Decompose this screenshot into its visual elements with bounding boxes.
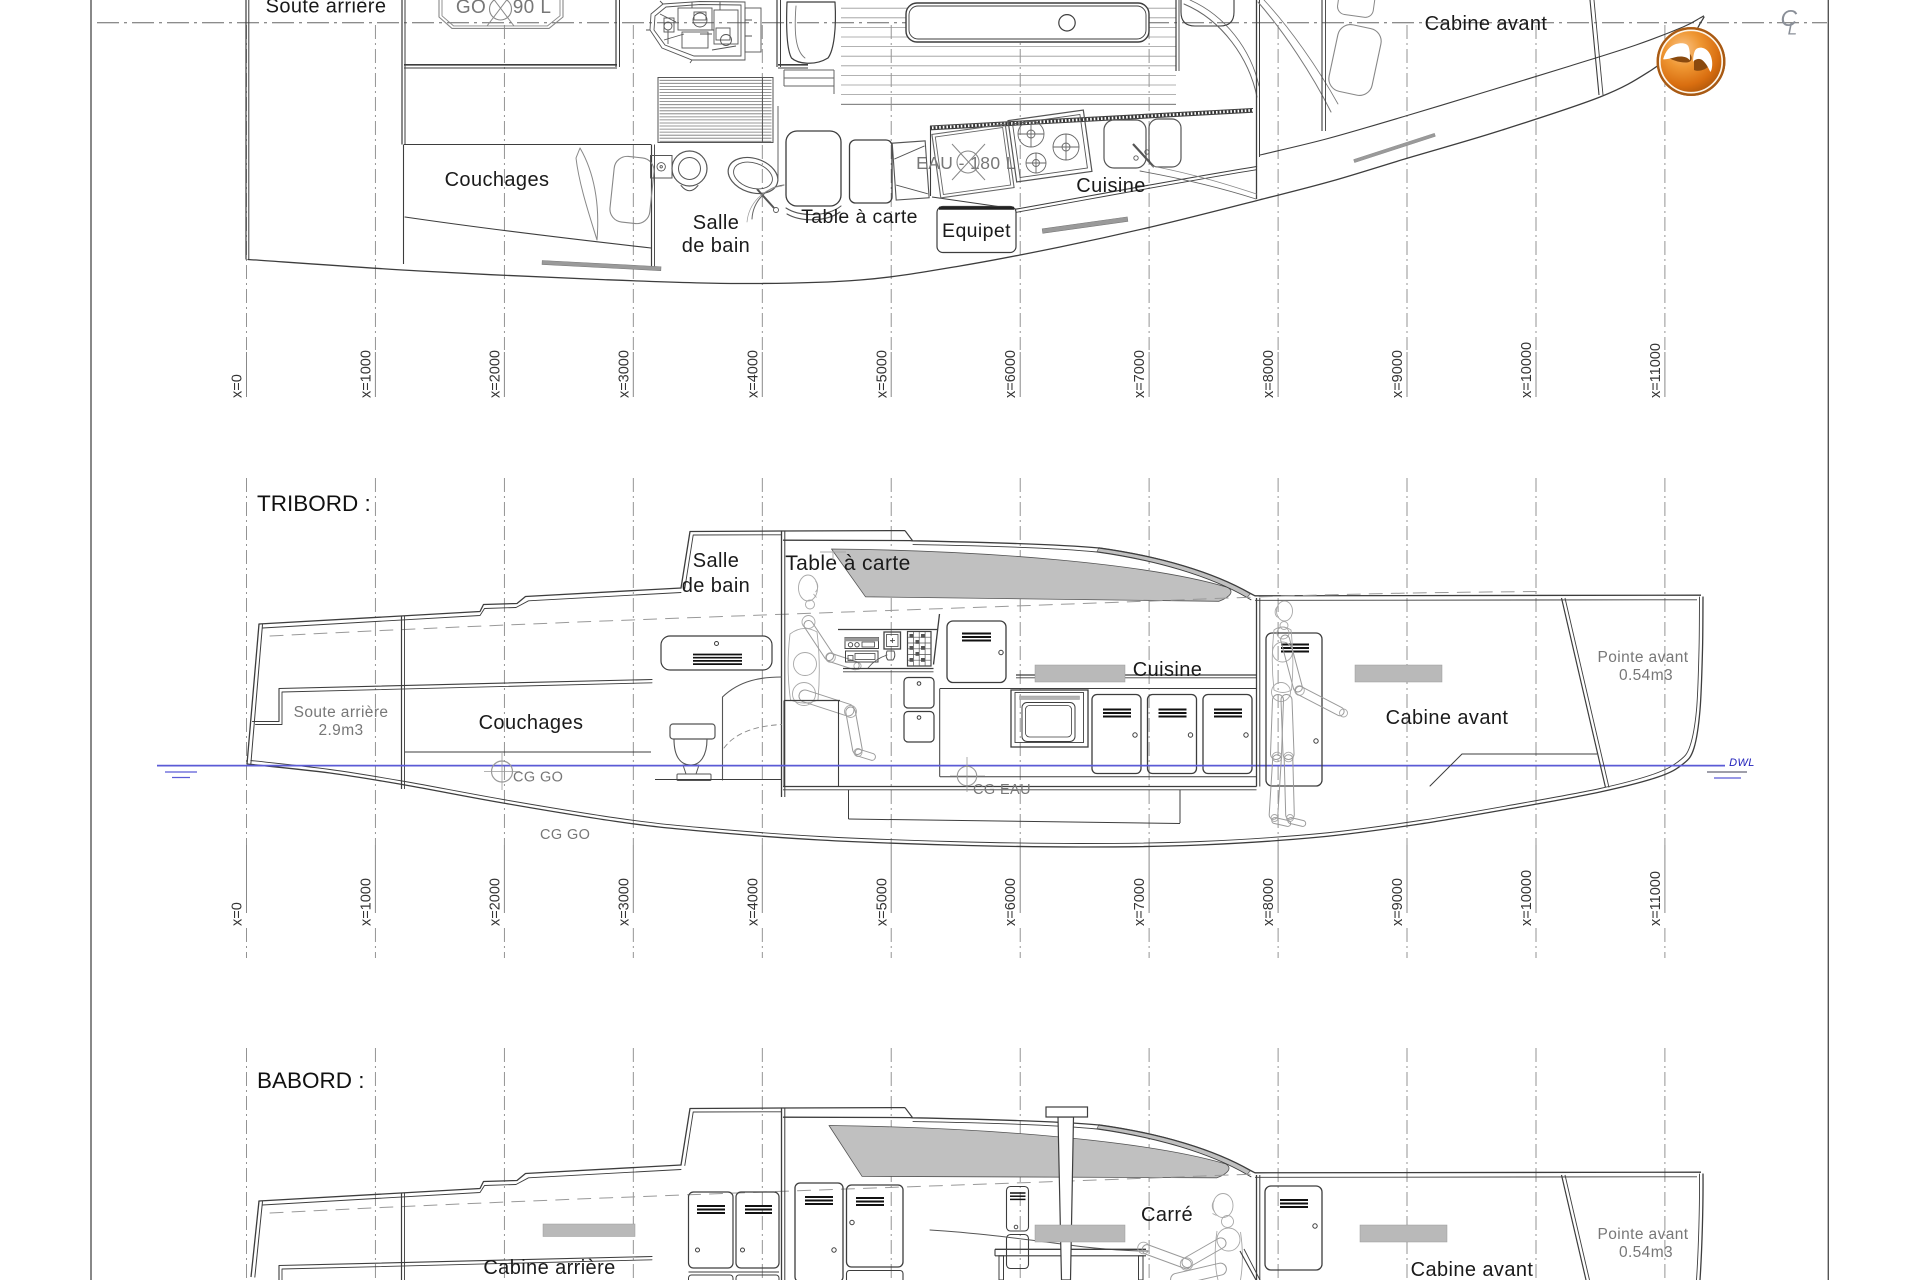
svg-text:Table à carte: Table à carte — [801, 206, 918, 228]
svg-text:x=5000: x=5000 — [874, 350, 890, 398]
svg-text:Salle: Salle — [693, 550, 739, 572]
svg-text:Cuisine: Cuisine — [1076, 175, 1146, 197]
svg-text:Table à carte: Table à carte — [785, 552, 910, 575]
svg-text:BABORD :: BABORD : — [257, 1068, 365, 1093]
svg-text:x=11000: x=11000 — [1648, 871, 1664, 926]
svg-text:DWL: DWL — [1729, 757, 1755, 769]
svg-text:x=10000: x=10000 — [1519, 870, 1535, 926]
svg-text:Salle: Salle — [693, 212, 739, 234]
svg-text:de bain: de bain — [682, 575, 750, 597]
svg-text:x=11000: x=11000 — [1648, 343, 1664, 398]
svg-text:x=4000: x=4000 — [745, 878, 761, 926]
svg-text:Carré: Carré — [1141, 1204, 1193, 1226]
svg-text:Soute arrière: Soute arrière — [266, 0, 387, 18]
svg-text:0.54m3: 0.54m3 — [1619, 1244, 1673, 1261]
svg-text:x=10000: x=10000 — [1519, 342, 1535, 398]
svg-text:Couchages: Couchages — [479, 712, 584, 734]
svg-text:x=2000: x=2000 — [487, 350, 503, 398]
svg-text:Soute arrière: Soute arrière — [294, 704, 389, 721]
svg-text:x=3000: x=3000 — [616, 350, 632, 398]
svg-text:x=0: x=0 — [230, 374, 246, 398]
svg-text:x=0: x=0 — [230, 902, 246, 926]
svg-text:Couchages: Couchages — [445, 169, 550, 191]
svg-text:x=6000: x=6000 — [1003, 350, 1019, 398]
svg-text:x=9000: x=9000 — [1390, 350, 1406, 398]
svg-text:L: L — [1788, 20, 1798, 39]
svg-text:x=7000: x=7000 — [1132, 350, 1148, 398]
svg-text:Cabine avant: Cabine avant — [1386, 707, 1509, 729]
svg-text:Cabine arrière: Cabine arrière — [483, 1257, 615, 1279]
svg-text:x=1000: x=1000 — [358, 350, 374, 398]
svg-text:2.9m3: 2.9m3 — [318, 722, 363, 739]
svg-text:Cabine avant: Cabine avant — [1411, 1259, 1534, 1280]
svg-text:90 L: 90 L — [513, 0, 552, 18]
svg-text:x=6000: x=6000 — [1003, 878, 1019, 926]
svg-text:x=8000: x=8000 — [1261, 350, 1277, 398]
svg-text:Pointe avant: Pointe avant — [1598, 649, 1689, 666]
svg-text:Equipet: Equipet — [942, 220, 1011, 242]
svg-text:0.54m3: 0.54m3 — [1619, 667, 1673, 684]
svg-text:EAU - 180 L: EAU - 180 L — [916, 153, 1016, 173]
svg-text:Cabine avant: Cabine avant — [1425, 13, 1548, 35]
svg-text:x=7000: x=7000 — [1132, 878, 1148, 926]
svg-text:GO: GO — [456, 0, 486, 18]
svg-text:x=3000: x=3000 — [616, 878, 632, 926]
svg-text:x=9000: x=9000 — [1390, 878, 1406, 926]
svg-text:x=1000: x=1000 — [358, 878, 374, 926]
svg-text:CG EAU: CG EAU — [973, 782, 1031, 798]
svg-text:x=5000: x=5000 — [874, 878, 890, 926]
svg-text:Pointe avant: Pointe avant — [1598, 1226, 1689, 1243]
svg-text:CG GO: CG GO — [513, 770, 563, 786]
svg-text:x=2000: x=2000 — [487, 878, 503, 926]
svg-text:CG GO: CG GO — [540, 827, 590, 843]
svg-text:de bain: de bain — [682, 235, 750, 257]
svg-text:x=8000: x=8000 — [1261, 878, 1277, 926]
svg-text:x=4000: x=4000 — [745, 350, 761, 398]
svg-text:Cuisine: Cuisine — [1133, 659, 1203, 681]
svg-text:TRIBORD :: TRIBORD : — [257, 491, 371, 516]
